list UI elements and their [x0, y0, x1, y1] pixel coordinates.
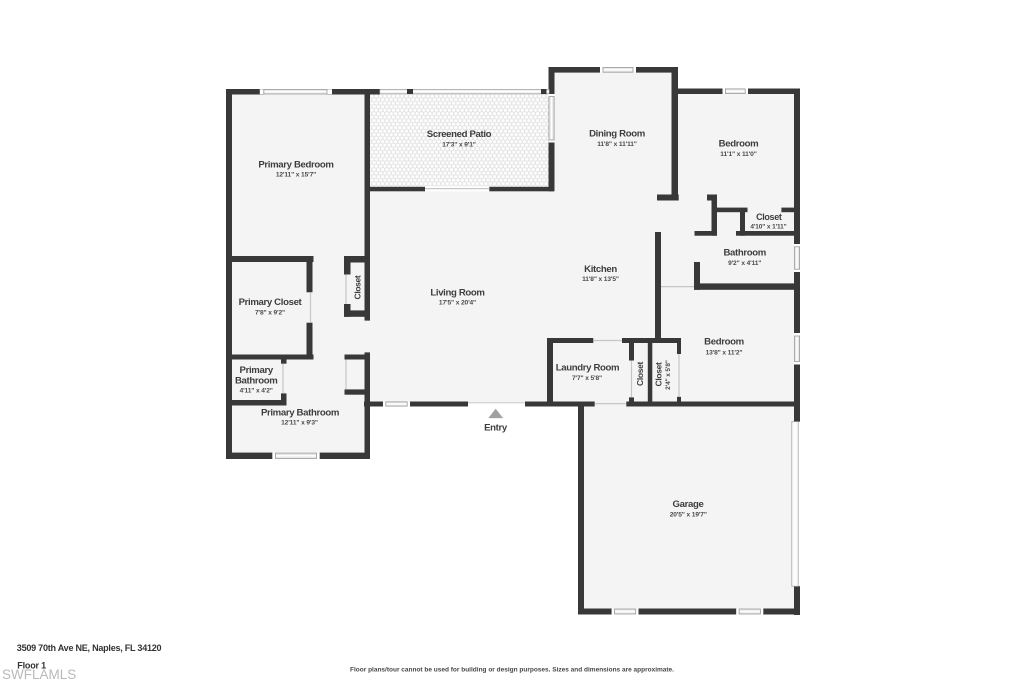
svg-text:Dining Room: Dining Room: [589, 129, 645, 140]
svg-text:Garage: Garage: [673, 499, 704, 510]
svg-text:3509 70th Ave NE, Naples, FL 3: 3509 70th Ave NE, Naples, FL 34120: [17, 643, 162, 653]
svg-text:Bathroom: Bathroom: [723, 248, 766, 259]
svg-text:11'8" x 11'11": 11'8" x 11'11": [597, 141, 637, 148]
svg-text:17'5" x 20'4": 17'5" x 20'4": [439, 300, 476, 307]
svg-text:Closet: Closet: [353, 275, 363, 299]
svg-text:Entry: Entry: [484, 423, 508, 434]
svg-text:17'3" x 9'1": 17'3" x 9'1": [442, 142, 476, 149]
svg-text:12'11" x 9'3": 12'11" x 9'3": [281, 420, 318, 427]
svg-text:Closet: Closet: [635, 362, 645, 386]
svg-text:Primary Bathroom: Primary Bathroom: [261, 408, 339, 419]
svg-text:4'10" x 1'11": 4'10" x 1'11": [750, 224, 786, 231]
svg-text:4'11" x 4'2": 4'11" x 4'2": [240, 388, 273, 395]
svg-text:Primary: Primary: [240, 365, 274, 376]
svg-text:20'5" x 19'7": 20'5" x 19'7": [670, 512, 707, 519]
svg-text:Closet: Closet: [756, 212, 782, 222]
svg-text:11'8" x 13'5": 11'8" x 13'5": [582, 276, 619, 283]
svg-text:Bedroom: Bedroom: [719, 139, 759, 150]
svg-text:13'8" x 11'2": 13'8" x 11'2": [706, 350, 743, 357]
svg-text:9'2" x 4'11": 9'2" x 4'11": [728, 260, 761, 267]
svg-text:Kitchen: Kitchen: [584, 264, 617, 275]
svg-text:SWFLAMLS: SWFLAMLS: [2, 667, 76, 682]
svg-text:Bedroom: Bedroom: [704, 337, 744, 348]
svg-text:2'4" x 5'8": 2'4" x 5'8": [665, 360, 672, 390]
svg-text:Primary Bedroom: Primary Bedroom: [258, 160, 333, 171]
svg-text:11'1" x 11'0": 11'1" x 11'0": [720, 151, 756, 158]
svg-text:Bathroom: Bathroom: [235, 376, 278, 387]
svg-text:Closet: Closet: [654, 362, 664, 386]
svg-text:Laundry Room: Laundry Room: [556, 363, 620, 374]
svg-text:Living Room: Living Room: [430, 288, 484, 299]
svg-text:7'8" x 9'2": 7'8" x 9'2": [255, 310, 285, 317]
svg-text:12'11" x 15'7": 12'11" x 15'7": [276, 172, 316, 179]
svg-text:Floor plans/tour cannot be use: Floor plans/tour cannot be used for buil…: [350, 667, 674, 674]
svg-text:7'7" x 5'8": 7'7" x 5'8": [572, 375, 602, 382]
svg-text:Screened Patio: Screened Patio: [427, 129, 492, 140]
svg-text:Primary Closet: Primary Closet: [239, 297, 303, 308]
